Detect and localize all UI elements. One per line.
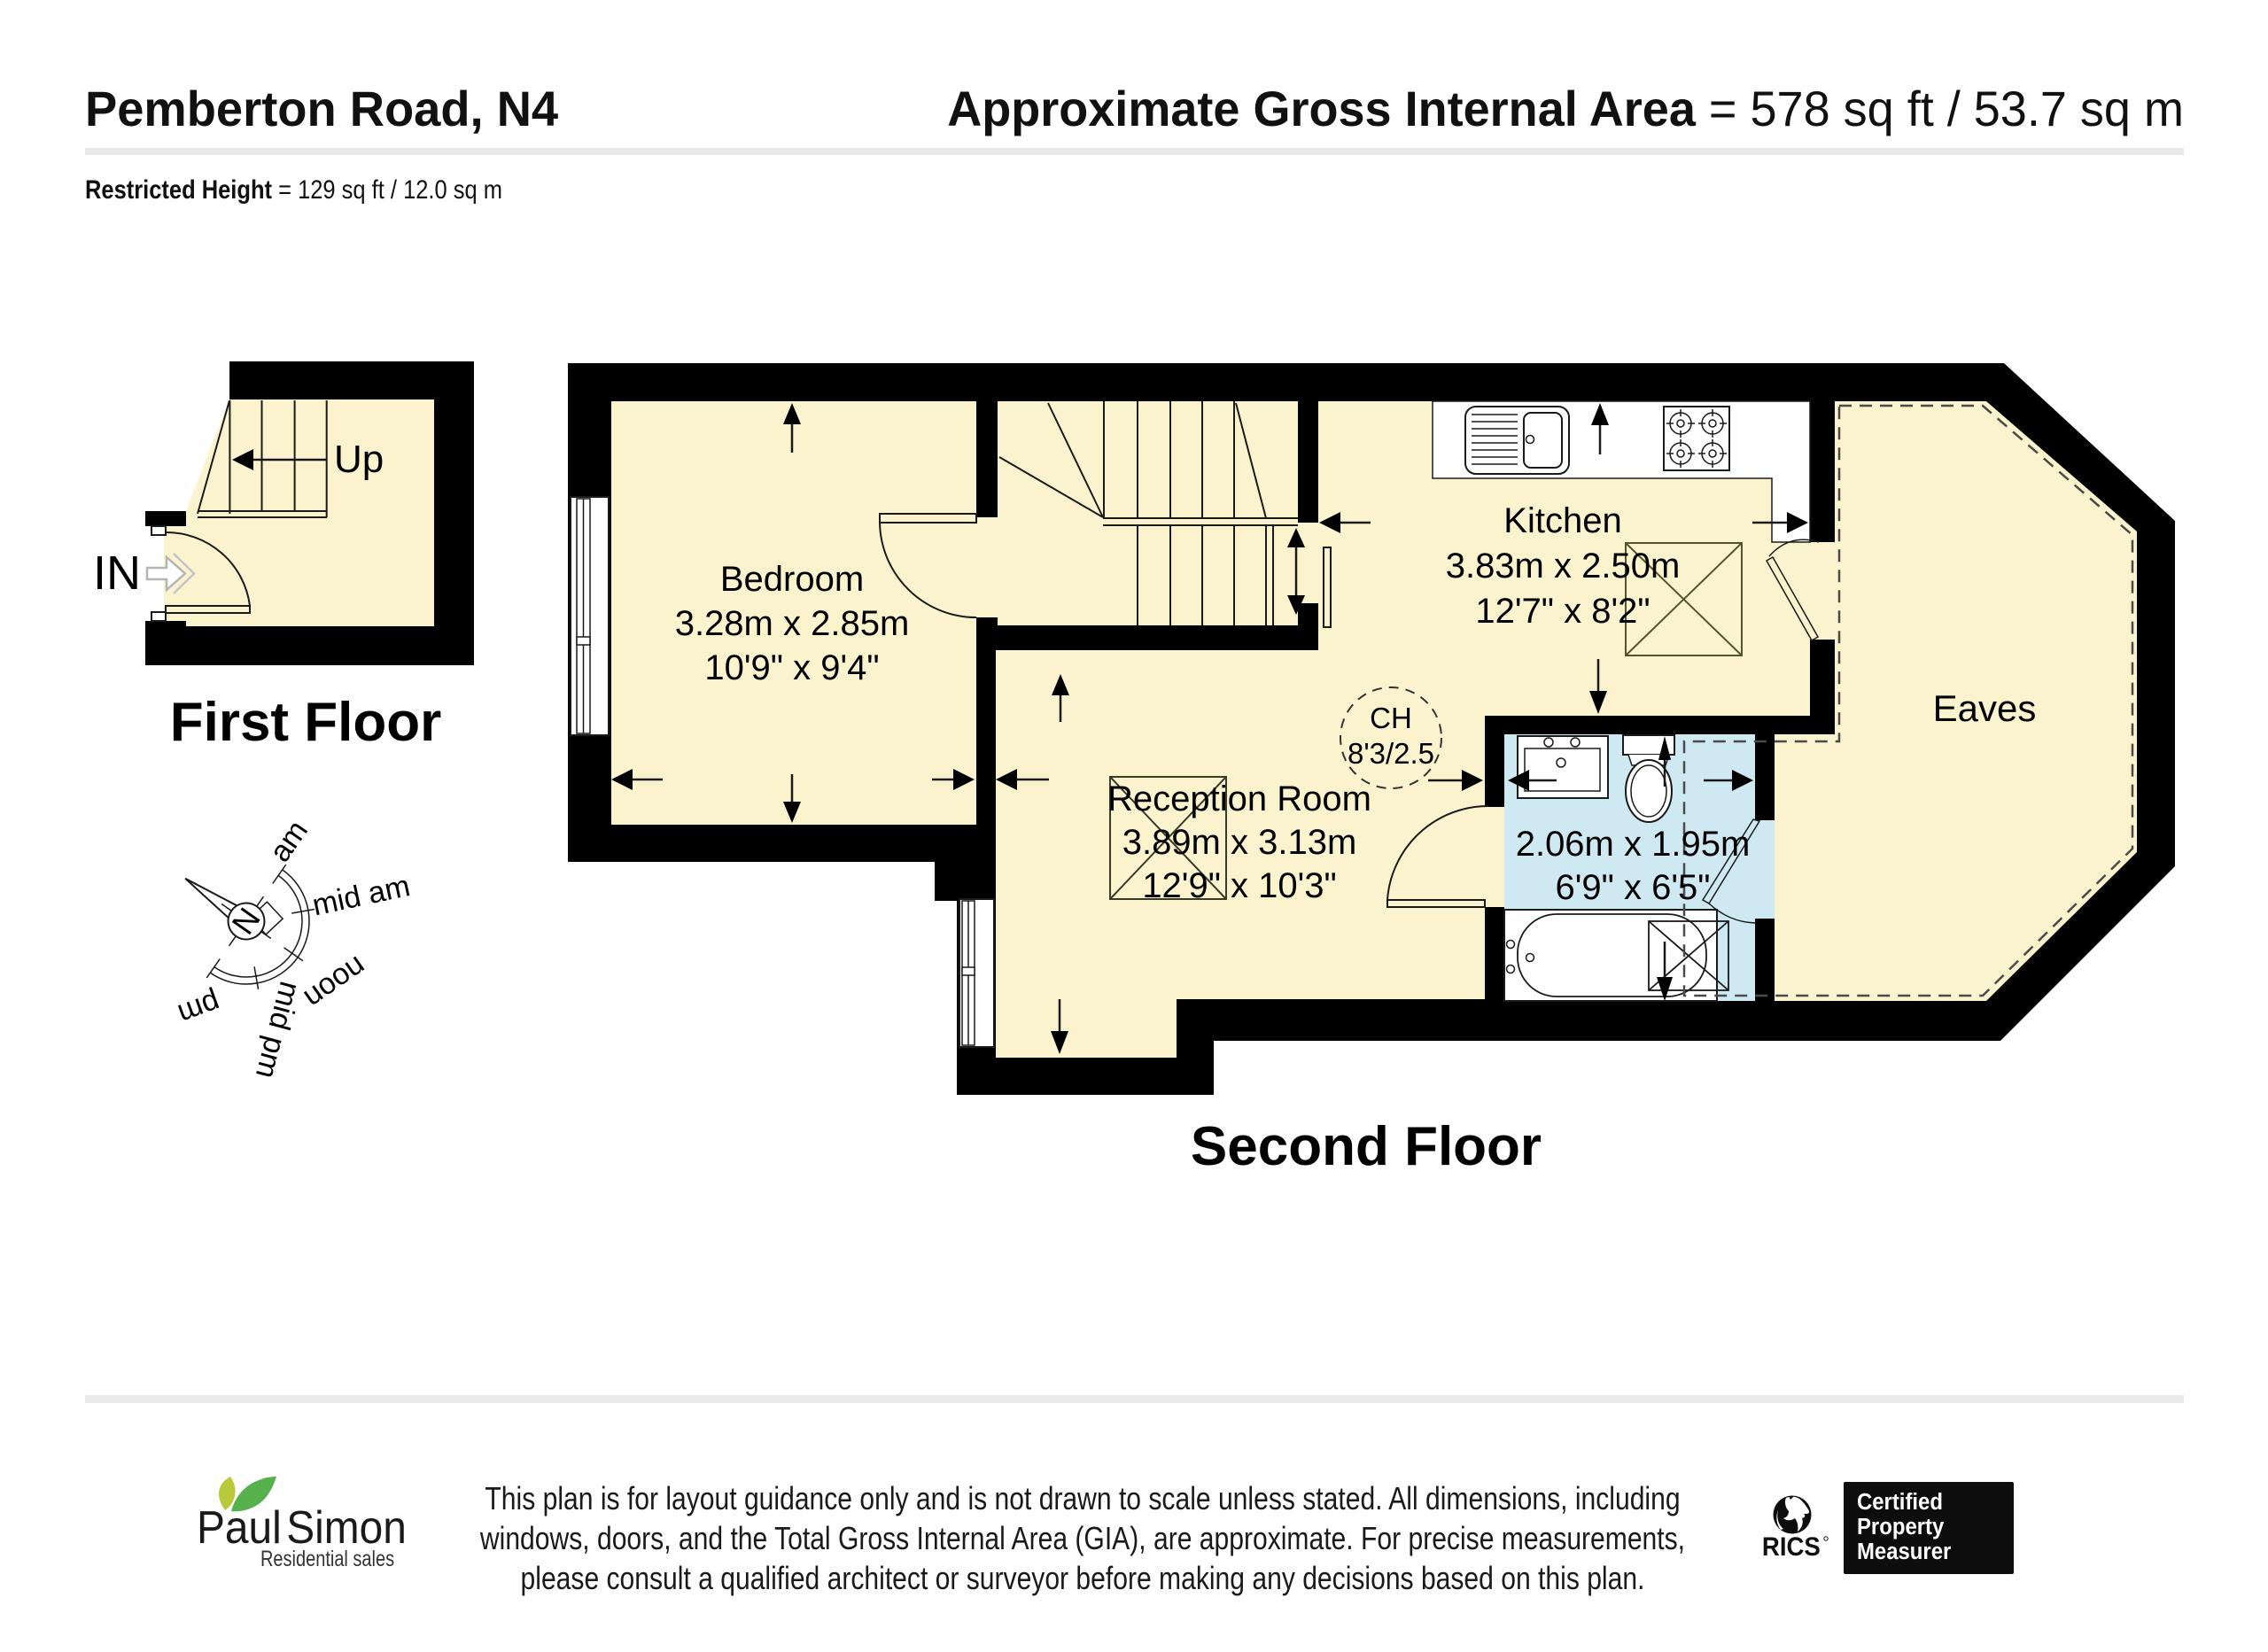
svg-text:3.83m x 2.50m: 3.83m x 2.50m	[1446, 547, 1681, 586]
svg-text:Bedroom: Bedroom	[720, 560, 864, 599]
svg-text:Property: Property	[1857, 1514, 1944, 1540]
svg-text:12'9" x 10'3": 12'9" x 10'3"	[1142, 866, 1336, 905]
svg-text:Certified: Certified	[1857, 1489, 1943, 1515]
svg-text:3.89m x 3.13m: 3.89m x 3.13m	[1122, 823, 1357, 862]
svg-text:8'3/2.5: 8'3/2.5	[1348, 737, 1434, 770]
svg-text:Eaves: Eaves	[1933, 687, 2037, 729]
svg-text:windows, doors, and the Total: windows, doors, and the Total Gross Inte…	[479, 1522, 1685, 1557]
svg-text:12'7" x 8'2": 12'7" x 8'2"	[1475, 592, 1650, 631]
svg-text:10'9" x 9'4": 10'9" x 9'4"	[704, 648, 879, 687]
svg-text:Pemberton Road, N4: Pemberton Road, N4	[85, 81, 558, 136]
svg-text:please consult a qualified arc: please consult a qualified architect or …	[521, 1562, 1645, 1597]
svg-text:CH: CH	[1370, 702, 1412, 734]
svg-text:2.06m x 1.95m: 2.06m x 1.95m	[1516, 825, 1751, 864]
svg-text:Kitchen: Kitchen	[1503, 501, 1621, 540]
svg-text:Reception Room: Reception Room	[1107, 779, 1371, 818]
svg-text:3.28m x 2.85m: 3.28m x 2.85m	[675, 604, 910, 643]
svg-text:Measurer: Measurer	[1857, 1539, 1952, 1564]
svg-text:RICS: RICS	[1762, 1532, 1821, 1562]
svg-text:IN: IN	[93, 547, 141, 600]
svg-text:Restricted Height = 129 sq ft: Restricted Height = 129 sq ft / 12.0 sq …	[85, 175, 502, 204]
svg-text:First Floor: First Floor	[170, 692, 442, 753]
svg-text:Up: Up	[334, 438, 384, 481]
svg-text:This plan is for layout guidan: This plan is for layout guidance only an…	[485, 1482, 1680, 1517]
svg-text:PaulSimon: PaulSimon	[197, 1501, 407, 1553]
svg-text:Approximate Gross Internal Are: Approximate Gross Internal Area = 578 sq…	[947, 81, 2184, 136]
svg-text:Second Floor: Second Floor	[1191, 1116, 1542, 1177]
svg-text:Residential sales: Residential sales	[260, 1547, 394, 1571]
svg-text:6'9" x 6'5": 6'9" x 6'5"	[1556, 868, 1711, 907]
